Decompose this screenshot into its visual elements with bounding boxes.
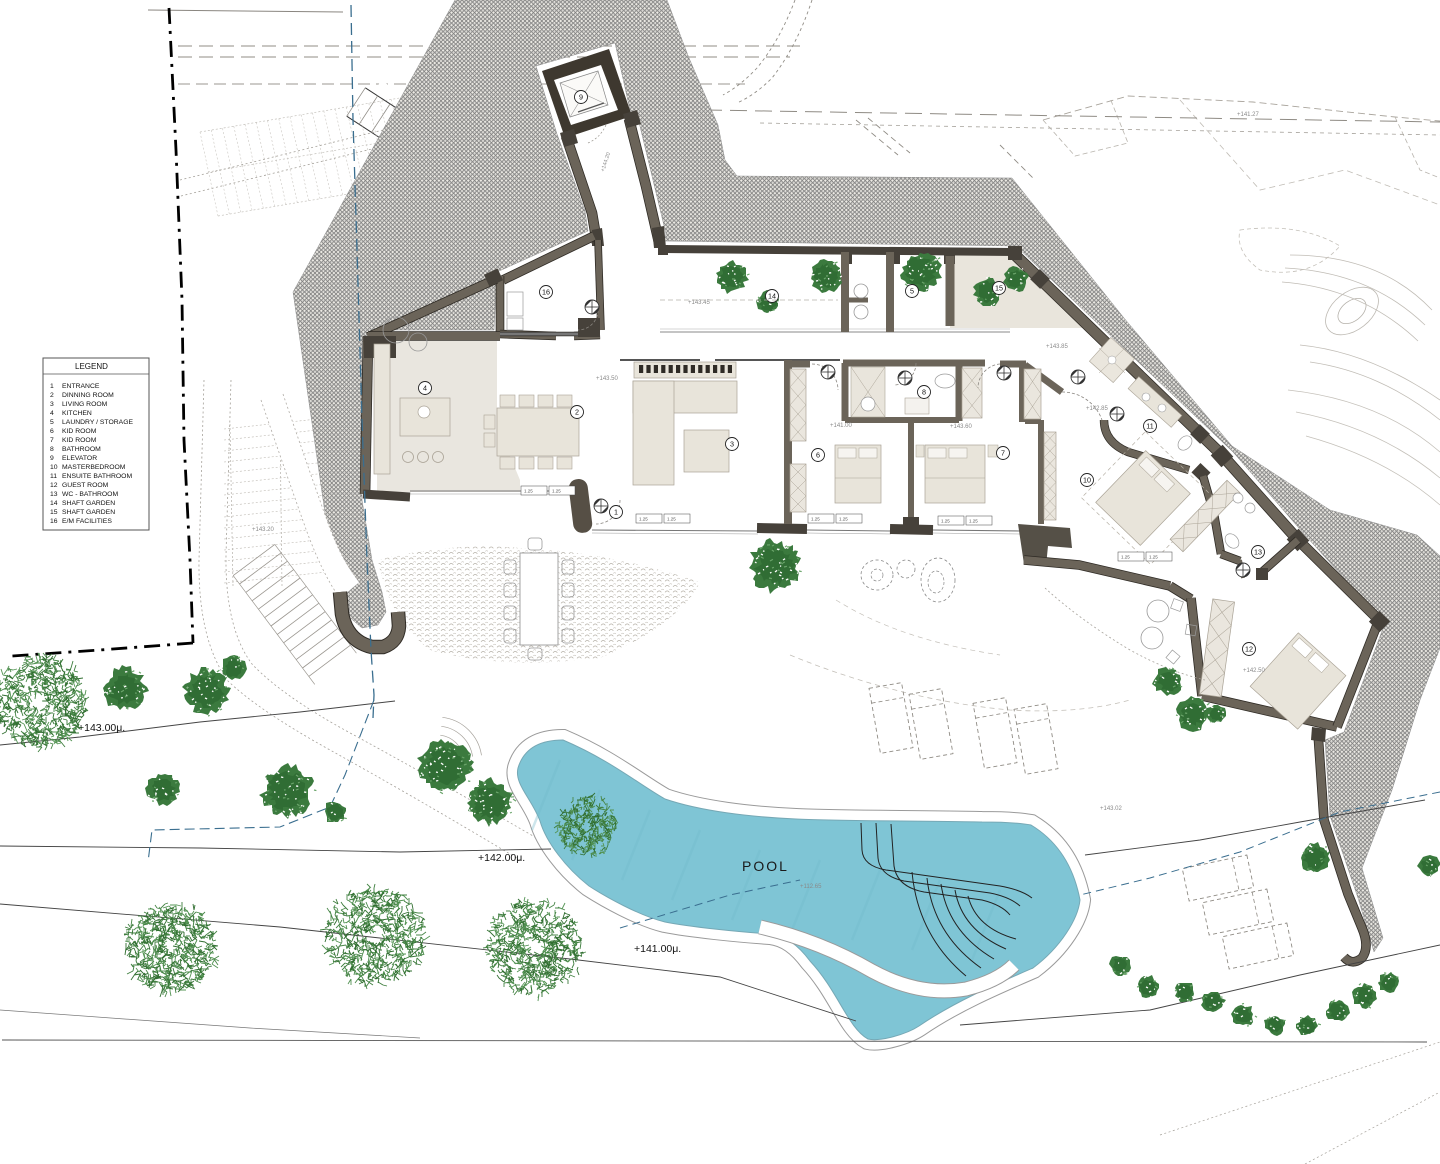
svg-text:2: 2 xyxy=(50,392,54,399)
svg-text:15: 15 xyxy=(50,509,58,516)
svg-text:6: 6 xyxy=(50,428,54,435)
svg-text:+143.02: +143.02 xyxy=(1100,806,1123,812)
svg-text:1.25: 1.25 xyxy=(524,489,533,494)
svg-text:13: 13 xyxy=(50,491,58,498)
svg-text:MASTERBEDROOM: MASTERBEDROOM xyxy=(62,464,126,471)
svg-text:14: 14 xyxy=(50,500,58,507)
svg-text:SHAFT GARDEN: SHAFT GARDEN xyxy=(62,509,115,516)
svg-text:5: 5 xyxy=(50,419,54,426)
svg-text:1: 1 xyxy=(50,383,54,390)
svg-text:+142.85: +142.85 xyxy=(1086,406,1109,412)
svg-text:1.25: 1.25 xyxy=(1121,555,1130,560)
svg-text:7: 7 xyxy=(1001,449,1005,458)
svg-text:1.25: 1.25 xyxy=(639,517,648,522)
svg-text:KITCHEN: KITCHEN xyxy=(62,410,92,417)
svg-text:1.25: 1.25 xyxy=(941,519,950,524)
svg-text:1.25: 1.25 xyxy=(969,519,978,524)
svg-text:1.25: 1.25 xyxy=(1149,555,1158,560)
svg-text:+143.00μ.: +143.00μ. xyxy=(78,722,125,734)
svg-text:1.25: 1.25 xyxy=(552,489,561,494)
svg-text:4: 4 xyxy=(423,384,427,393)
svg-text:ELEVATOR: ELEVATOR xyxy=(62,455,97,462)
svg-text:LAUNDRY / STORAGE: LAUNDRY / STORAGE xyxy=(62,419,133,426)
svg-text:+141.27: +141.27 xyxy=(1237,112,1260,118)
svg-text:ENSUITE BATHROOM: ENSUITE BATHROOM xyxy=(62,473,132,480)
svg-text:+112.65: +112.65 xyxy=(800,884,822,890)
svg-text:KID ROOM: KID ROOM xyxy=(62,437,97,444)
svg-text:+143.85: +143.85 xyxy=(1046,344,1069,350)
svg-text:14: 14 xyxy=(768,292,776,301)
svg-text:GUEST ROOM: GUEST ROOM xyxy=(62,482,109,489)
svg-text:12: 12 xyxy=(1245,645,1253,654)
svg-text:WC - BATHROOM: WC - BATHROOM xyxy=(62,491,118,498)
svg-text:+143.45: +143.45 xyxy=(688,300,711,306)
svg-text:7: 7 xyxy=(50,437,54,444)
svg-text:16: 16 xyxy=(50,518,58,525)
svg-text:2: 2 xyxy=(575,408,579,417)
svg-text:6: 6 xyxy=(816,451,820,460)
svg-text:3: 3 xyxy=(730,440,734,449)
svg-text:12: 12 xyxy=(50,482,58,489)
svg-text:+143.60: +143.60 xyxy=(950,424,973,430)
svg-text:4: 4 xyxy=(50,410,54,417)
svg-text:15: 15 xyxy=(995,284,1003,293)
svg-text:9: 9 xyxy=(50,455,54,462)
svg-text:+142.00μ.: +142.00μ. xyxy=(478,852,525,864)
svg-text:8: 8 xyxy=(50,446,54,453)
svg-text:16: 16 xyxy=(542,288,550,297)
svg-text:+141.00μ.: +141.00μ. xyxy=(634,943,681,955)
svg-text:+143.50: +143.50 xyxy=(596,376,619,382)
svg-text:8: 8 xyxy=(922,388,926,397)
svg-text:LEGEND: LEGEND xyxy=(75,362,108,371)
svg-text:9: 9 xyxy=(579,93,583,102)
svg-text:10: 10 xyxy=(50,464,58,471)
svg-text:BATHROOM: BATHROOM xyxy=(62,446,101,453)
svg-text:KID ROOM: KID ROOM xyxy=(62,428,97,435)
svg-text:POOL: POOL xyxy=(742,858,789,874)
svg-text:13: 13 xyxy=(1254,548,1262,557)
svg-text:1.25: 1.25 xyxy=(667,517,676,522)
svg-text:1.25: 1.25 xyxy=(811,517,820,522)
svg-text:3: 3 xyxy=(50,401,54,408)
svg-text:11: 11 xyxy=(50,473,57,480)
svg-text:+143.20: +143.20 xyxy=(252,527,275,533)
svg-text:ENTRANCE: ENTRANCE xyxy=(62,383,100,390)
svg-text:E/M FACILITIES: E/M FACILITIES xyxy=(62,518,112,525)
svg-text:+141.00: +141.00 xyxy=(830,423,853,429)
svg-text:+142.50: +142.50 xyxy=(1243,668,1266,674)
svg-text:1: 1 xyxy=(614,508,618,517)
svg-text:10: 10 xyxy=(1083,476,1091,485)
svg-text:LIVING ROOM: LIVING ROOM xyxy=(62,401,108,408)
svg-text:1.25: 1.25 xyxy=(839,517,848,522)
svg-text:5: 5 xyxy=(910,287,914,296)
svg-text:SHAFT GARDEN: SHAFT GARDEN xyxy=(62,500,115,507)
svg-text:DINNING ROOM: DINNING ROOM xyxy=(62,392,114,399)
svg-text:11: 11 xyxy=(1146,422,1153,431)
